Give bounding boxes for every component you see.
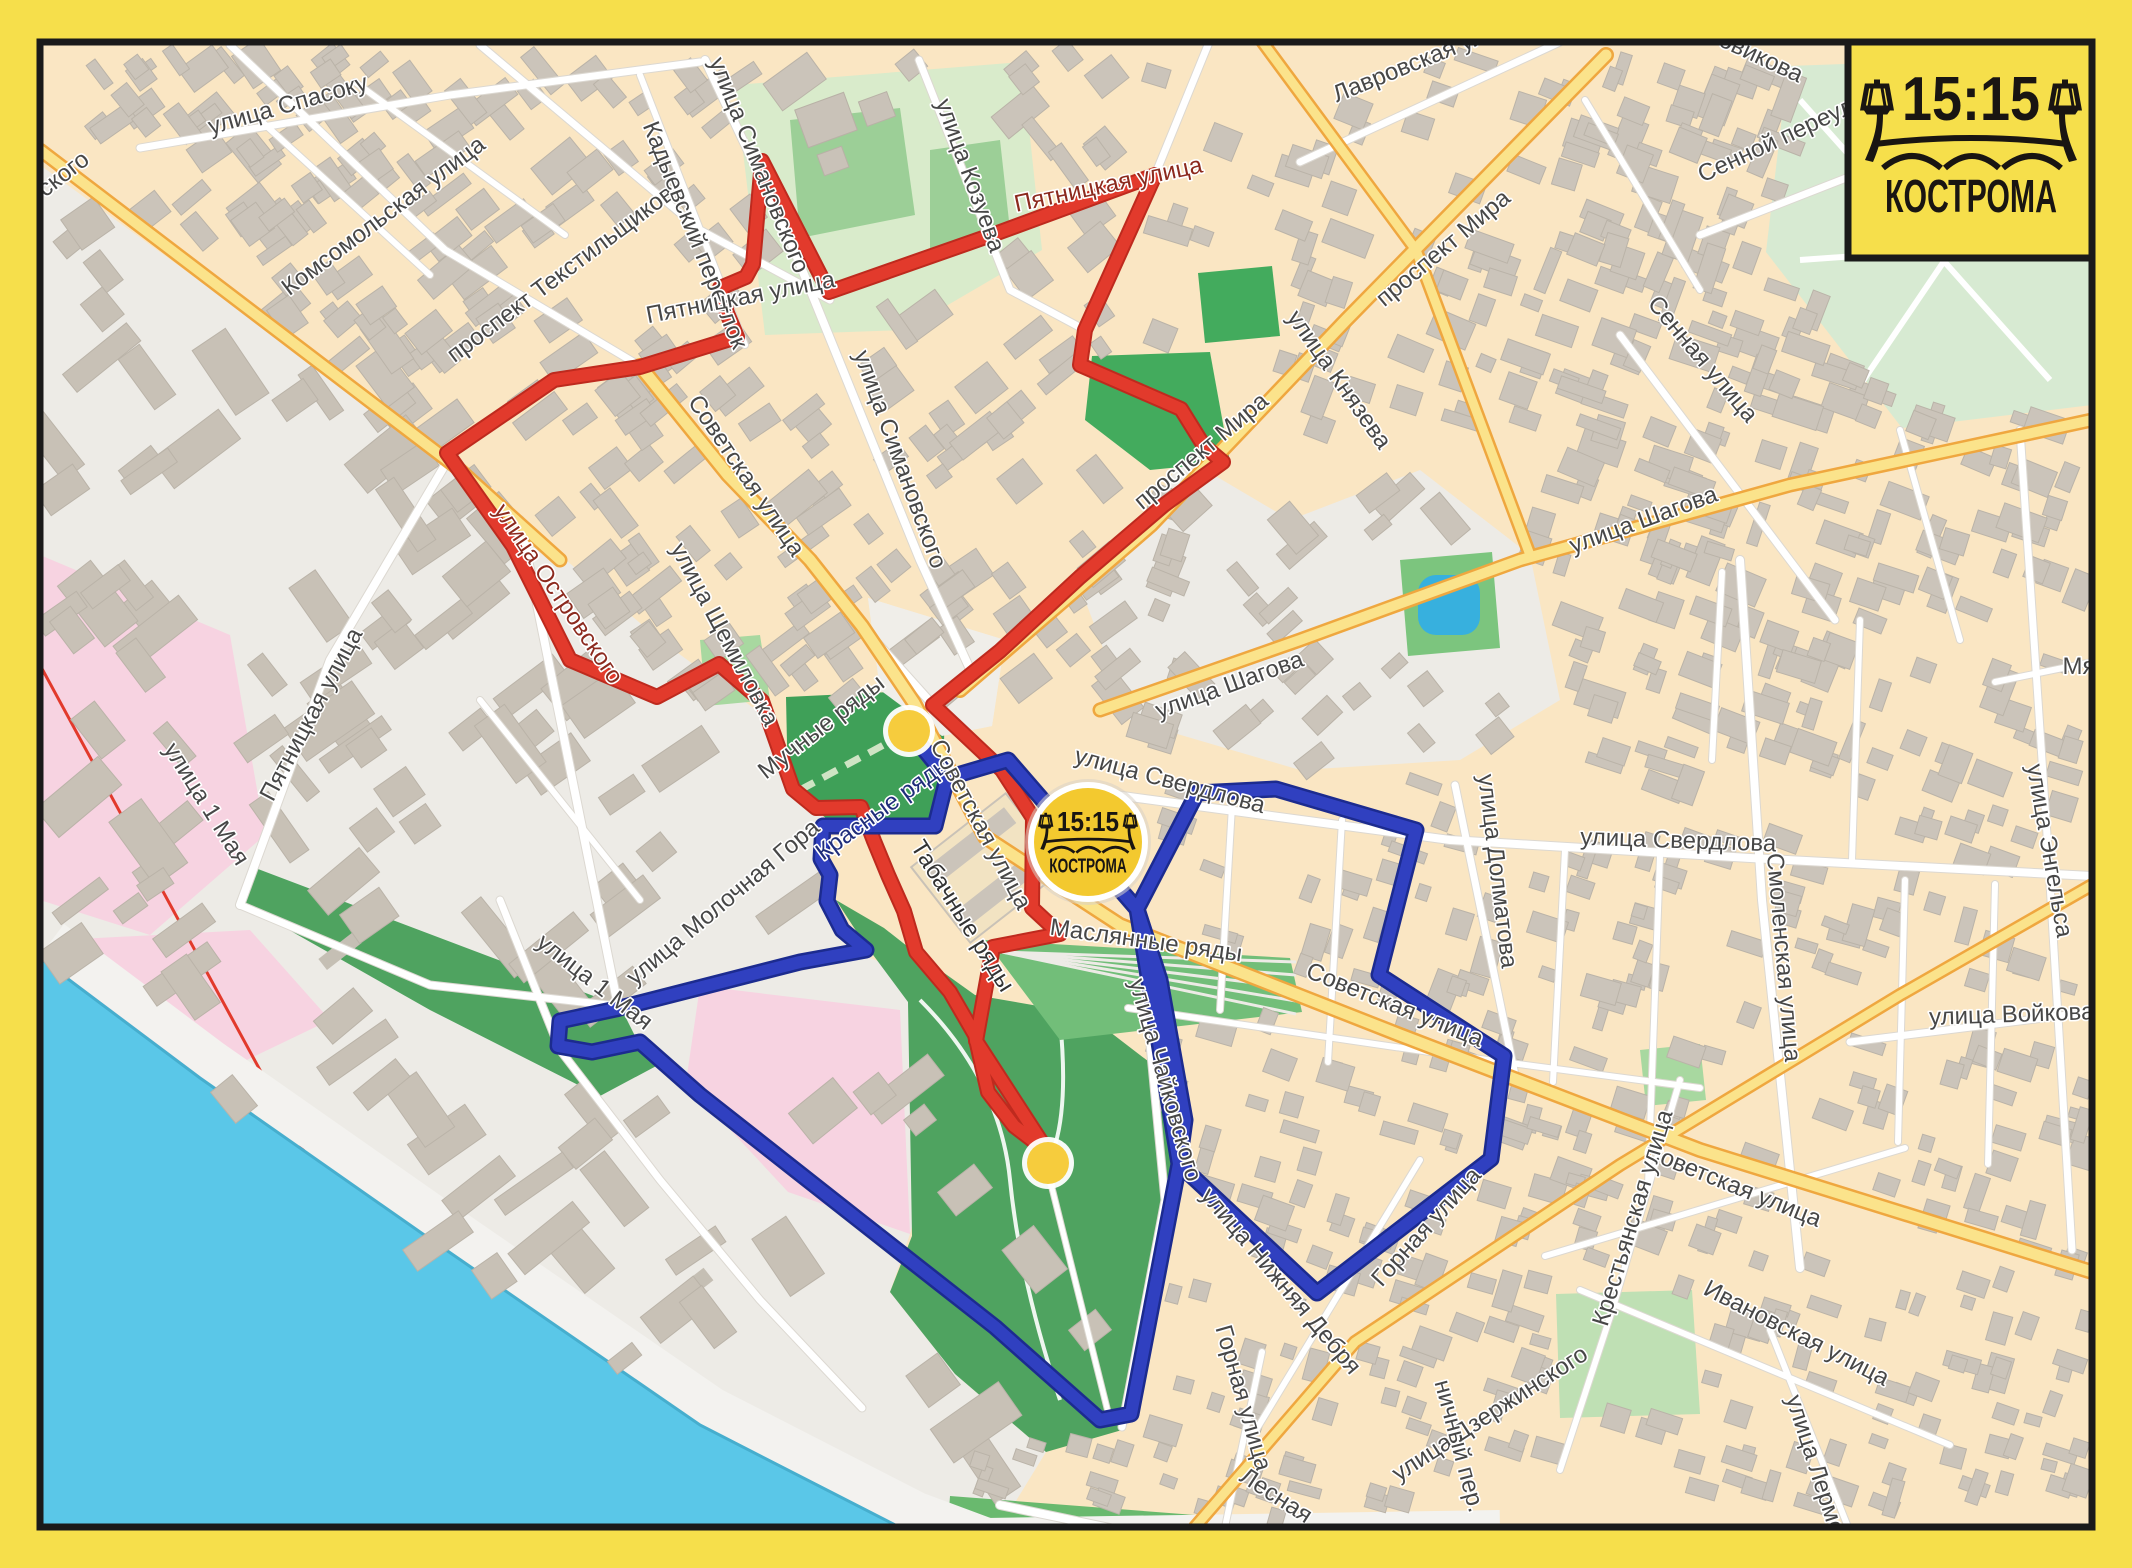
svg-text:КОСТРОМА: КОСТРОМА	[1885, 170, 2057, 222]
svg-text:15:15: 15:15	[1057, 806, 1119, 837]
svg-text:КОСТРОМА: КОСТРОМА	[1049, 854, 1126, 877]
svg-text:15:15: 15:15	[1902, 65, 2040, 134]
